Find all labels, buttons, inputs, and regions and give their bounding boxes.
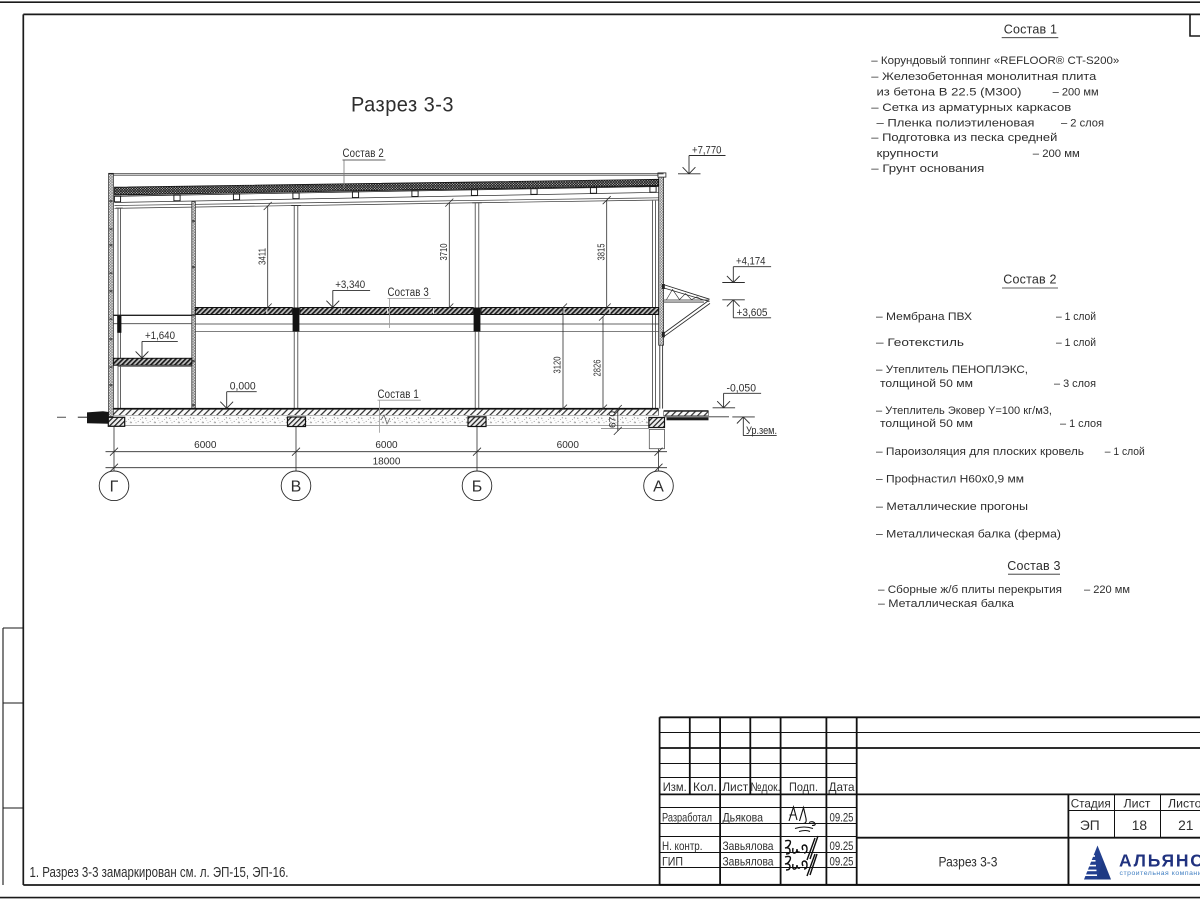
svg-text:– 3 слоя: – 3 слоя bbox=[1054, 378, 1096, 390]
svg-text:– Пароизоляция для плоских кро: – Пароизоляция для плоских кровель bbox=[876, 446, 1084, 458]
svg-text:из бетона В 22.5 (М300): из бетона В 22.5 (М300) bbox=[877, 86, 1022, 98]
svg-text:– Пленка полиэтиленовая: – Пленка полиэтиленовая bbox=[877, 118, 1035, 130]
svg-text:Ур.зем.: Ур.зем. bbox=[746, 425, 777, 437]
svg-text:670: 670 bbox=[608, 411, 618, 428]
svg-text:6000: 6000 bbox=[194, 440, 217, 451]
svg-text:Состав 1: Состав 1 bbox=[1004, 23, 1057, 37]
svg-text:– Профнастил Н60х0,9 мм: – Профнастил Н60х0,9 мм bbox=[876, 473, 1024, 485]
svg-text:– 1 слоя: – 1 слоя bbox=[1060, 418, 1102, 430]
svg-text:– Утеплитель Эковер Y=100 кг/м: – Утеплитель Эковер Y=100 кг/м3, bbox=[876, 405, 1052, 417]
svg-text:Завьялова: Завьялова bbox=[723, 854, 774, 868]
svg-text:Н. контр.: Н. контр. bbox=[662, 839, 703, 853]
svg-text:– Металлическая балка: – Металлическая балка bbox=[878, 598, 1015, 610]
svg-text:+1,640: +1,640 bbox=[145, 330, 175, 342]
svg-text:21: 21 bbox=[1178, 818, 1193, 833]
svg-text:– 1 слой: – 1 слой bbox=[1056, 311, 1096, 323]
svg-text:Дьякова: Дьякова bbox=[723, 811, 764, 825]
svg-text:строительная компания: строительная компания bbox=[1120, 870, 1200, 877]
svg-text:– Металлические прогоны: – Металлические прогоны bbox=[876, 501, 1028, 513]
svg-text:крупности: крупности bbox=[877, 148, 939, 160]
svg-text:– Корундовый топпинг «REFLOOR®: – Корундовый топпинг «REFLOOR® CT-S200» bbox=[871, 55, 1119, 67]
svg-text:1. Разрез 3-3 замаркирован см.: 1. Разрез 3-3 замаркирован см. л. ЭП-15,… bbox=[30, 865, 289, 881]
svg-text:– Утеплитель ПЕНОПЛЭКС,: – Утеплитель ПЕНОПЛЭКС, bbox=[876, 364, 1028, 376]
svg-text:– Металлическая балка (ферма): – Металлическая балка (ферма) bbox=[876, 529, 1061, 541]
svg-text:– 1 слой: – 1 слой bbox=[1056, 337, 1096, 349]
svg-text:Лист: Лист bbox=[722, 780, 748, 794]
svg-text:– Мембрана ПВХ: – Мембрана ПВХ bbox=[876, 311, 973, 323]
svg-text:Состав 3: Состав 3 bbox=[388, 287, 430, 299]
svg-text:Кол.: Кол. bbox=[693, 780, 717, 794]
svg-text:толщиной 50 мм: толщиной 50 мм bbox=[880, 378, 973, 390]
svg-text:Состав 2: Состав 2 bbox=[343, 148, 385, 160]
svg-text:Дата: Дата bbox=[829, 780, 855, 794]
svg-text:– Грунт основания: – Грунт основания bbox=[871, 163, 984, 175]
svg-text:Изм.: Изм. bbox=[663, 780, 687, 794]
svg-text:АЛЬЯНС: АЛЬЯНС bbox=[1119, 851, 1200, 871]
svg-text:+3,340: +3,340 bbox=[335, 279, 365, 291]
svg-text:-0,050: -0,050 bbox=[727, 382, 757, 394]
svg-text:– 2 слоя: – 2 слоя bbox=[1061, 118, 1104, 130]
svg-text:3710: 3710 bbox=[439, 243, 450, 260]
svg-text:Подп.: Подп. bbox=[789, 780, 818, 794]
svg-text:+7,770: +7,770 bbox=[692, 145, 722, 157]
svg-text:09.25: 09.25 bbox=[830, 811, 854, 825]
svg-text:2826: 2826 bbox=[593, 359, 604, 376]
svg-text:ЭП: ЭП bbox=[1080, 818, 1100, 833]
svg-text:3411: 3411 bbox=[257, 248, 268, 265]
svg-text:Стадия: Стадия bbox=[1071, 797, 1111, 811]
svg-text:– Геотекстиль: – Геотекстиль bbox=[876, 337, 964, 349]
svg-text:– Железобетонная монолитная п: – Железобетонная монолитная плита bbox=[871, 71, 1097, 83]
svg-text:Лист: Лист bbox=[1124, 797, 1151, 811]
svg-text:– 200 мм: – 200 мм bbox=[1033, 148, 1080, 160]
svg-text:Завьялова: Завьялова bbox=[723, 839, 774, 853]
svg-text:Разрез 3-3: Разрез 3-3 bbox=[351, 94, 454, 117]
svg-text:Листов: Листов bbox=[1168, 797, 1200, 811]
svg-text:– 200 мм: – 200 мм bbox=[1053, 86, 1099, 98]
svg-text:ГИП: ГИП bbox=[662, 854, 683, 868]
svg-text:Состав 1: Состав 1 bbox=[378, 389, 420, 401]
svg-text:09.25: 09.25 bbox=[830, 839, 854, 853]
svg-text:09.25: 09.25 bbox=[830, 854, 854, 868]
svg-text:18000: 18000 bbox=[373, 456, 401, 467]
svg-text:толщиной 50 мм: толщиной 50 мм bbox=[880, 418, 973, 430]
svg-text:Разрез 3-3: Разрез 3-3 bbox=[939, 853, 998, 869]
svg-text:– Сборные ж/б плиты перекрытия: – Сборные ж/б плиты перекрытия bbox=[878, 584, 1062, 596]
svg-text:№док.: №док. bbox=[751, 780, 781, 794]
svg-text:– 1 слой: – 1 слой bbox=[1105, 446, 1145, 458]
svg-text:Б: Б bbox=[472, 479, 483, 496]
svg-text:3815: 3815 bbox=[596, 243, 607, 260]
svg-text:– Сетка из арматурных каркасов: – Сетка из арматурных каркасов bbox=[871, 102, 1071, 114]
svg-text:+4,174: +4,174 bbox=[736, 255, 766, 267]
svg-text:– 220 мм: – 220 мм bbox=[1084, 584, 1130, 596]
svg-text:0,000: 0,000 bbox=[230, 381, 256, 393]
svg-text:Г: Г bbox=[110, 479, 119, 496]
svg-text:3120: 3120 bbox=[553, 356, 564, 373]
svg-text:18: 18 bbox=[1132, 818, 1148, 833]
svg-text:В: В bbox=[291, 479, 302, 496]
svg-text:Состав 2: Состав 2 bbox=[1003, 273, 1056, 287]
svg-text:6000: 6000 bbox=[557, 440, 580, 451]
svg-text:– Подготовка из песка средней: – Подготовка из песка средней bbox=[871, 132, 1057, 144]
svg-text:+3,605: +3,605 bbox=[737, 307, 768, 319]
svg-text:6000: 6000 bbox=[375, 440, 398, 451]
svg-text:Разработал: Разработал bbox=[662, 811, 712, 825]
svg-text:А: А bbox=[653, 479, 664, 496]
svg-text:Состав 3: Состав 3 bbox=[1007, 559, 1060, 573]
